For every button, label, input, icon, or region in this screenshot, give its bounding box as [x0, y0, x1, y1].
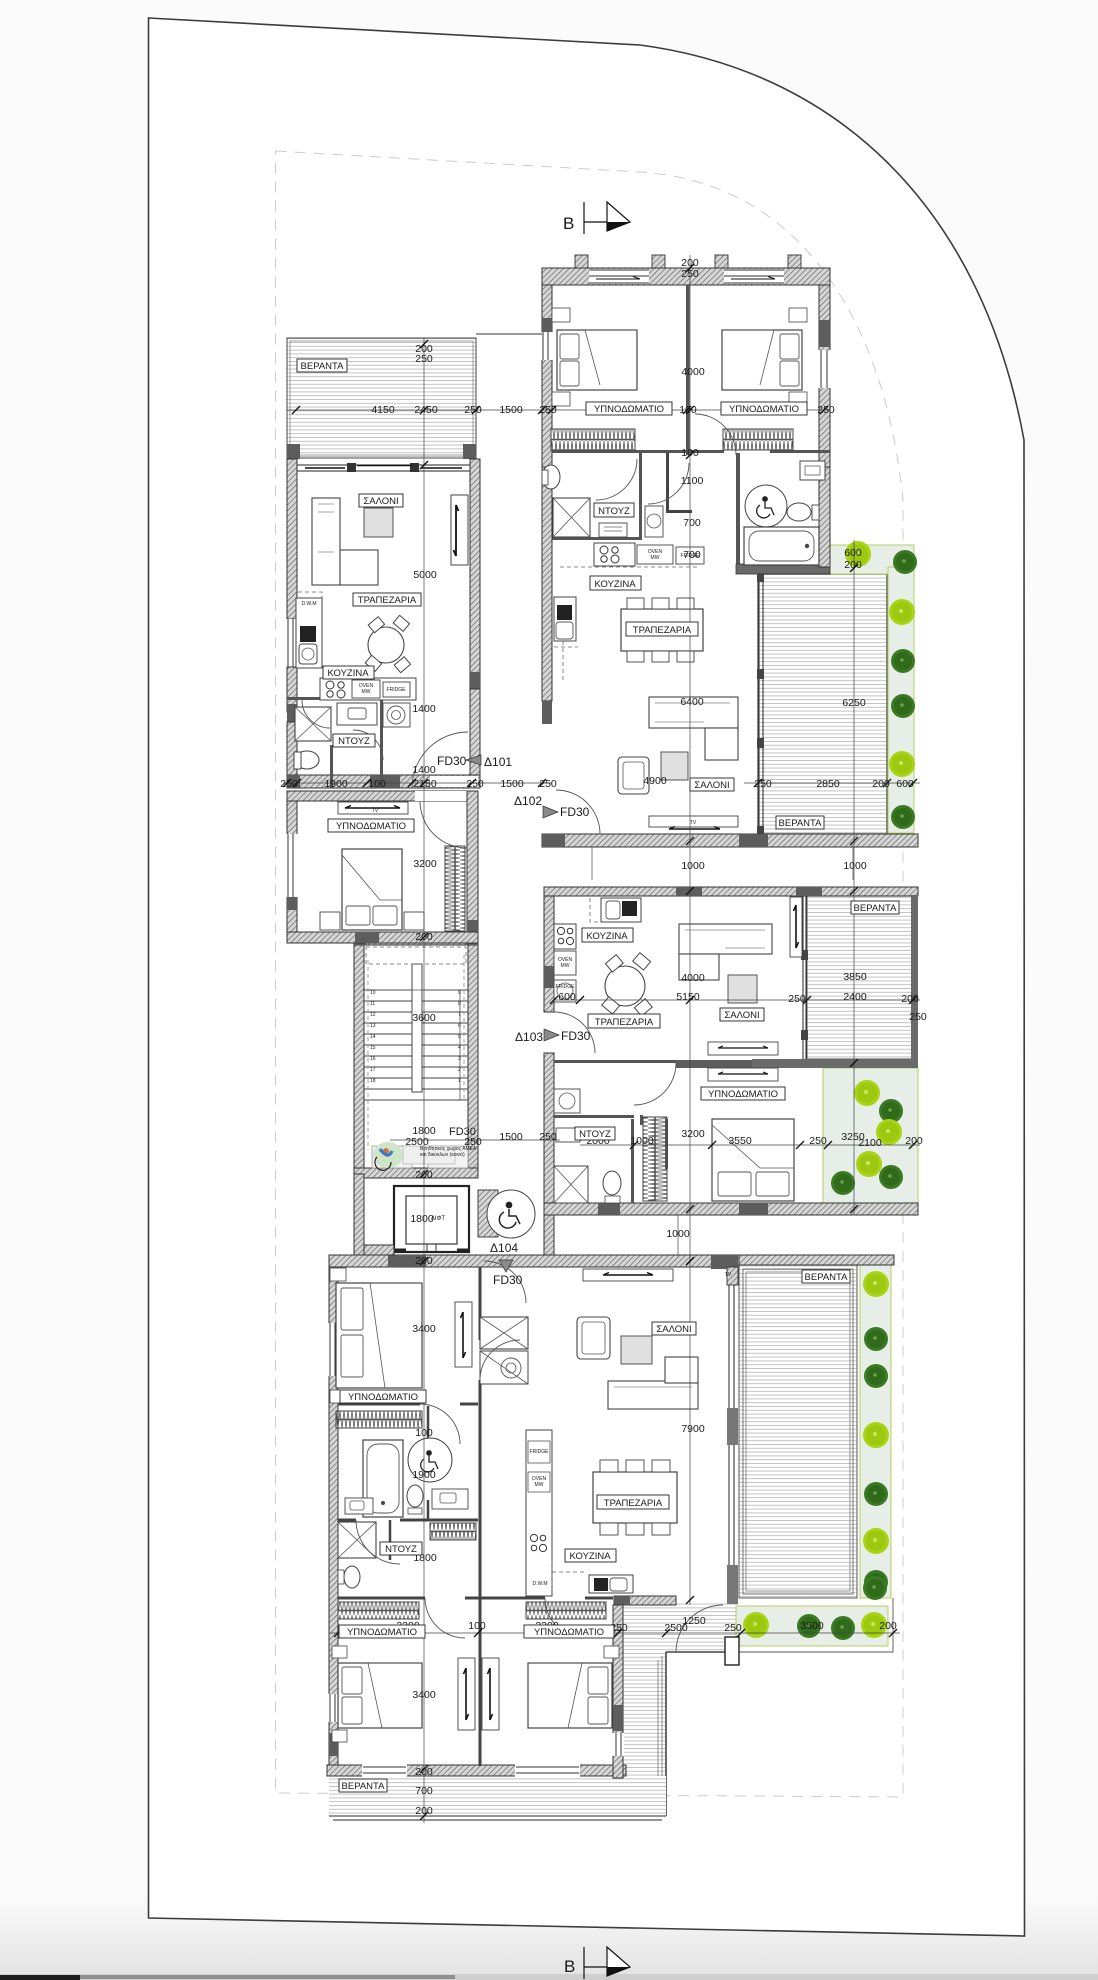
svg-text:250: 250 — [909, 1011, 927, 1023]
svg-text:3500: 3500 — [800, 1620, 824, 1632]
svg-text:B: B — [563, 214, 574, 233]
svg-text:ΣΑΛΟΝΙ: ΣΑΛΟΝΙ — [363, 496, 398, 507]
svg-text:3550: 3550 — [728, 1135, 752, 1147]
svg-text:FD30: FD30 — [560, 805, 590, 819]
svg-text:D.W.M: D.W.M — [533, 1581, 548, 1587]
svg-text:3200: 3200 — [413, 858, 437, 870]
svg-text:1000: 1000 — [681, 860, 705, 872]
svg-text:4900: 4900 — [643, 775, 667, 787]
svg-text:ΒΕΡΑΝΤΑ: ΒΕΡΑΝΤΑ — [854, 903, 898, 914]
svg-text:1400: 1400 — [412, 703, 436, 715]
svg-text:FD30: FD30 — [437, 754, 467, 768]
svg-text:D.W.M: D.W.M — [302, 601, 317, 607]
svg-text:TV: TV — [372, 808, 379, 814]
svg-text:MW: MW — [362, 689, 371, 695]
svg-text:FRIDGE: FRIDGE — [556, 984, 576, 990]
svg-text:FRIDGE: FRIDGE — [530, 1449, 550, 1455]
svg-text:2450: 2450 — [414, 404, 438, 416]
svg-text:100: 100 — [415, 1427, 433, 1439]
svg-text:250: 250 — [464, 404, 482, 416]
svg-text:B: B — [564, 1957, 575, 1976]
svg-text:FD30: FD30 — [449, 1126, 476, 1138]
svg-text:250: 250 — [809, 1135, 827, 1147]
svg-text:17: 17 — [370, 1067, 376, 1073]
svg-text:ΥΠΝΟΔΩΜΑΤΙΟ: ΥΠΝΟΔΩΜΑΤΙΟ — [336, 821, 406, 832]
svg-text:4000: 4000 — [681, 366, 705, 378]
svg-text:ΚΟΥΖΙΝΑ: ΚΟΥΖΙΝΑ — [586, 931, 628, 942]
svg-text:200: 200 — [415, 1169, 433, 1181]
svg-text:4150: 4150 — [371, 404, 395, 416]
svg-text:ΤΡΑΠΕΖΑΡΙΑ: ΤΡΑΠΕΖΑΡΙΑ — [633, 625, 692, 636]
svg-text:1500: 1500 — [499, 404, 523, 416]
svg-text:200: 200 — [415, 931, 433, 943]
svg-text:TV: TV — [725, 1272, 732, 1278]
svg-text:1100: 1100 — [681, 475, 704, 487]
svg-text:ΥΠΝΟΔΩΜΑΤΙΟ: ΥΠΝΟΔΩΜΑΤΙΟ — [708, 1089, 778, 1100]
svg-text:8: 8 — [458, 1001, 461, 1007]
svg-text:250: 250 — [539, 1131, 557, 1143]
svg-text:700: 700 — [683, 517, 701, 529]
svg-text:ΒΕΡΑΝΤΑ: ΒΕΡΑΝΤΑ — [301, 361, 345, 372]
svg-text:1500: 1500 — [500, 778, 524, 790]
svg-text:18: 18 — [370, 1078, 376, 1084]
svg-text:13: 13 — [370, 1023, 376, 1029]
svg-text:FD30: FD30 — [561, 1029, 591, 1043]
svg-text:250: 250 — [539, 778, 557, 790]
svg-text:ΝΤΟΥΖ: ΝΤΟΥΖ — [385, 1544, 417, 1555]
svg-text:ΝΤΟΥΖ: ΝΤΟΥΖ — [579, 1129, 611, 1140]
svg-text:10: 10 — [370, 990, 376, 996]
svg-text:2: 2 — [458, 1067, 461, 1073]
svg-text:και δικύκλων (κοινό): και δικύκλων (κοινό) — [420, 1151, 465, 1158]
svg-text:2100: 2100 — [858, 1137, 882, 1149]
svg-text:200: 200 — [879, 1620, 897, 1632]
svg-text:1400: 1400 — [412, 764, 436, 776]
svg-text:4: 4 — [458, 1045, 461, 1051]
svg-text:700: 700 — [415, 1785, 433, 1797]
svg-text:1000: 1000 — [843, 860, 867, 872]
svg-text:ΣΑΛΟΝΙ: ΣΑΛΟΝΙ — [656, 1324, 691, 1335]
svg-text:3600: 3600 — [412, 1012, 436, 1024]
svg-text:ΥΠΝΟΔΩΜΑΤΙΟ: ΥΠΝΟΔΩΜΑΤΙΟ — [729, 404, 799, 415]
svg-text:4000: 4000 — [681, 972, 705, 984]
svg-text:600: 600 — [844, 547, 862, 559]
svg-text:ΥΠΝΟΔΩΜΑΤΙΟ: ΥΠΝΟΔΩΜΑΤΙΟ — [348, 1392, 418, 1403]
svg-text:ΝΤΟΥΖ: ΝΤΟΥΖ — [598, 506, 630, 517]
svg-text:3: 3 — [458, 1056, 461, 1062]
svg-text:ΣΑΛΟΝΙ: ΣΑΛΟΝΙ — [694, 780, 729, 791]
svg-text:250: 250 — [466, 778, 484, 790]
svg-text:200: 200 — [415, 1805, 433, 1817]
svg-text:250: 250 — [681, 268, 699, 280]
svg-text:Δ102: Δ102 — [514, 794, 542, 808]
svg-text:5: 5 — [458, 1034, 461, 1040]
svg-text:MW: MW — [651, 555, 660, 561]
svg-text:ΤΡΑΠΕΖΑΡΙΑ: ΤΡΑΠΕΖΑΡΙΑ — [595, 1017, 654, 1028]
svg-text:1000: 1000 — [666, 1228, 690, 1240]
svg-text:1900: 1900 — [412, 1469, 436, 1481]
svg-text:5000: 5000 — [413, 569, 437, 581]
svg-text:FRIDGE: FRIDGE — [681, 553, 701, 559]
svg-text:3200: 3200 — [681, 1128, 705, 1140]
svg-text:2850: 2850 — [816, 778, 840, 790]
svg-text:15: 15 — [370, 1045, 376, 1051]
svg-text:ΤΡΑΠΕΖΑΡΙΑ: ΤΡΑΠΕΖΑΡΙΑ — [358, 595, 417, 606]
svg-text:6: 6 — [458, 1023, 461, 1029]
svg-text:5150: 5150 — [676, 991, 700, 1003]
svg-text:200: 200 — [872, 778, 890, 790]
svg-text:ΥΠΝΟΔΩΜΑΤΙΟ: ΥΠΝΟΔΩΜΑΤΙΟ — [594, 404, 664, 415]
svg-text:100: 100 — [368, 778, 386, 790]
svg-text:6400: 6400 — [680, 696, 704, 708]
svg-text:200: 200 — [415, 1766, 433, 1778]
svg-text:100: 100 — [679, 404, 697, 416]
svg-text:3850: 3850 — [843, 971, 867, 983]
svg-text:250: 250 — [817, 404, 835, 416]
svg-text:Βοηθητικός χώρος ΑΜΕΑ: Βοηθητικός χώρος ΑΜΕΑ — [420, 1145, 477, 1152]
svg-text:Δ103: Δ103 — [515, 1030, 543, 1044]
svg-text:Δ101: Δ101 — [484, 755, 512, 769]
svg-text:100: 100 — [681, 447, 699, 459]
svg-text:600: 600 — [558, 991, 576, 1003]
svg-text:7: 7 — [458, 1012, 461, 1018]
svg-text:TV: TV — [690, 820, 697, 826]
svg-text:200: 200 — [901, 993, 919, 1005]
svg-text:MW: MW — [535, 1482, 544, 1488]
svg-text:12: 12 — [370, 1012, 376, 1018]
svg-text:11: 11 — [370, 1001, 375, 1007]
svg-text:ΛΙΦΤ: ΛΙΦΤ — [431, 1216, 445, 1222]
svg-text:16: 16 — [370, 1056, 376, 1062]
svg-text:1000: 1000 — [630, 1135, 654, 1147]
svg-text:ΣΑΛΟΝΙ: ΣΑΛΟΝΙ — [724, 1010, 759, 1021]
svg-text:ΒΕΡΑΝΤΑ: ΒΕΡΑΝΤΑ — [342, 1781, 386, 1792]
svg-text:9: 9 — [458, 990, 461, 996]
svg-text:2400: 2400 — [843, 991, 867, 1003]
svg-text:FRIDGE: FRIDGE — [387, 687, 407, 693]
svg-text:ΒΕΡΑΝΤΑ: ΒΕΡΑΝΤΑ — [779, 818, 823, 829]
svg-text:200: 200 — [844, 559, 862, 571]
svg-text:ΚΟΥΖΙΝΑ: ΚΟΥΖΙΝΑ — [569, 1551, 611, 1562]
svg-text:MW: MW — [561, 963, 570, 969]
svg-text:250: 250 — [754, 778, 772, 790]
svg-text:200: 200 — [905, 1135, 923, 1147]
svg-text:250: 250 — [788, 993, 806, 1005]
svg-text:ΝΤΟΥΖ: ΝΤΟΥΖ — [338, 736, 370, 747]
svg-text:200: 200 — [415, 1255, 433, 1267]
svg-text:ΚΟΥΖΙΝΑ: ΚΟΥΖΙΝΑ — [594, 579, 636, 590]
svg-text:6250: 6250 — [842, 697, 866, 709]
svg-text:FD30: FD30 — [493, 1273, 523, 1287]
svg-text:250: 250 — [724, 1622, 742, 1634]
svg-text:3400: 3400 — [412, 1323, 436, 1335]
svg-text:Δ104: Δ104 — [490, 1241, 518, 1255]
svg-text:2150: 2150 — [413, 778, 437, 790]
svg-text:ΥΠΝΟΔΩΜΑΤΙΟ: ΥΠΝΟΔΩΜΑΤΙΟ — [534, 1627, 604, 1638]
svg-text:600: 600 — [896, 778, 914, 790]
svg-text:7900: 7900 — [681, 1423, 705, 1435]
svg-text:ΤΡΑΠΕΖΑΡΙΑ: ΤΡΑΠΕΖΑΡΙΑ — [604, 1498, 663, 1509]
svg-text:ΥΠΝΟΔΩΜΑΤΙΟ: ΥΠΝΟΔΩΜΑΤΙΟ — [347, 1627, 417, 1638]
svg-text:ΚΟΥΖΙΝΑ: ΚΟΥΖΙΝΑ — [327, 668, 369, 679]
svg-text:250: 250 — [415, 353, 433, 365]
svg-text:ΒΕΡΑΝΤΑ: ΒΕΡΑΝΤΑ — [805, 1272, 849, 1283]
svg-text:1250: 1250 — [682, 1615, 706, 1627]
svg-text:1900: 1900 — [324, 778, 348, 790]
svg-text:250: 250 — [280, 778, 298, 790]
svg-text:3400: 3400 — [412, 1689, 436, 1701]
svg-text:14: 14 — [370, 1034, 376, 1040]
svg-text:1: 1 — [458, 1078, 461, 1084]
svg-text:1500: 1500 — [499, 1131, 523, 1143]
svg-text:100: 100 — [468, 1620, 486, 1632]
svg-text:250: 250 — [539, 404, 557, 416]
